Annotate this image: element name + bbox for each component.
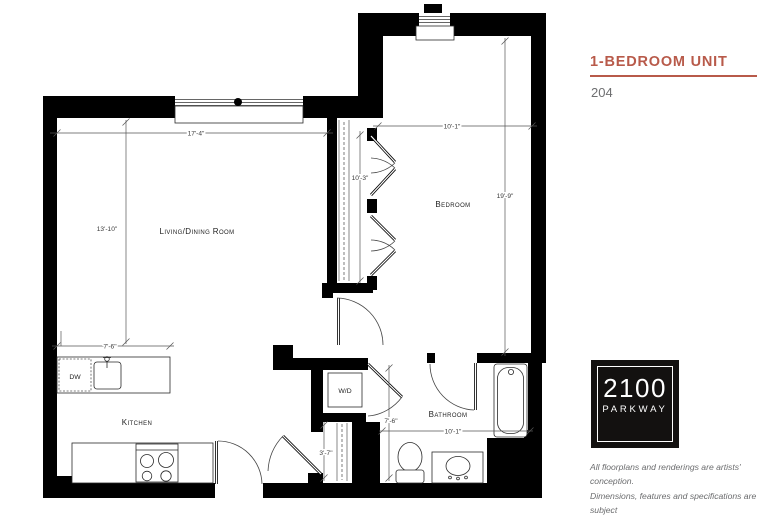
room-label-living: Living/Dining Room	[160, 227, 235, 236]
room-label-bedroom: Bedroom	[435, 200, 470, 209]
room-label-kitchen: Kitchen	[122, 418, 152, 427]
dim-living-width: 17'-4"	[188, 131, 205, 138]
bedroom-window	[416, 13, 454, 40]
dim-bedroom-width: 10'-1"	[444, 124, 461, 131]
dim-island-width: 7'-6"	[103, 344, 117, 351]
dim-closet-length: 10'-3"	[352, 175, 369, 182]
floorplan-page: 17'-4" 13'-10" 10'-3" 10'-1" 19'-9"	[0, 0, 780, 517]
entry-closet-rod	[337, 423, 347, 481]
toilet	[396, 443, 424, 484]
window-mullion-dot	[234, 98, 242, 106]
stove	[136, 444, 178, 482]
kitchen-sink	[94, 362, 121, 389]
washer-dryer-door	[368, 364, 402, 416]
dim-entry-closet: 3'-7"	[319, 450, 333, 457]
unit-number: 204	[591, 85, 613, 100]
bedroom-door	[337, 298, 383, 345]
label-dishwasher: DW	[69, 374, 81, 381]
bedroom-closet-rod	[339, 120, 349, 281]
disclaimer-line-1: All floorplans and renderings are artist…	[590, 460, 780, 489]
title-underline	[590, 75, 757, 77]
logo-parkway-text: PARKWAY	[591, 404, 679, 415]
dim-bathroom-depth: 7'-6"	[384, 418, 398, 425]
bathroom-vanity	[432, 452, 483, 483]
kitchen-counter	[72, 443, 213, 483]
disclaimer-line-2: Dimensions, features and specifications …	[590, 489, 780, 517]
living-room-window	[175, 96, 303, 123]
room-label-bathroom: Bathroom	[429, 410, 468, 419]
bathtub	[494, 364, 527, 437]
label-washer-dryer: W/D	[338, 388, 351, 395]
dim-bathroom-width: 10'-1"	[445, 429, 462, 436]
entry-door	[217, 441, 263, 484]
entry-closet-door	[268, 436, 321, 474]
logo-2100-text: 2100	[591, 373, 679, 404]
bathroom-door	[430, 363, 476, 410]
walls	[43, 4, 546, 498]
unit-type-title: 1-BEDROOM UNIT	[590, 54, 728, 70]
disclaimer-text: All floorplans and renderings are artist…	[590, 460, 780, 517]
dim-living-depth: 13'-10"	[97, 226, 118, 233]
brand-logo: 2100 PARKWAY	[591, 360, 679, 448]
dim-bedroom-length: 19'-9"	[497, 193, 514, 200]
